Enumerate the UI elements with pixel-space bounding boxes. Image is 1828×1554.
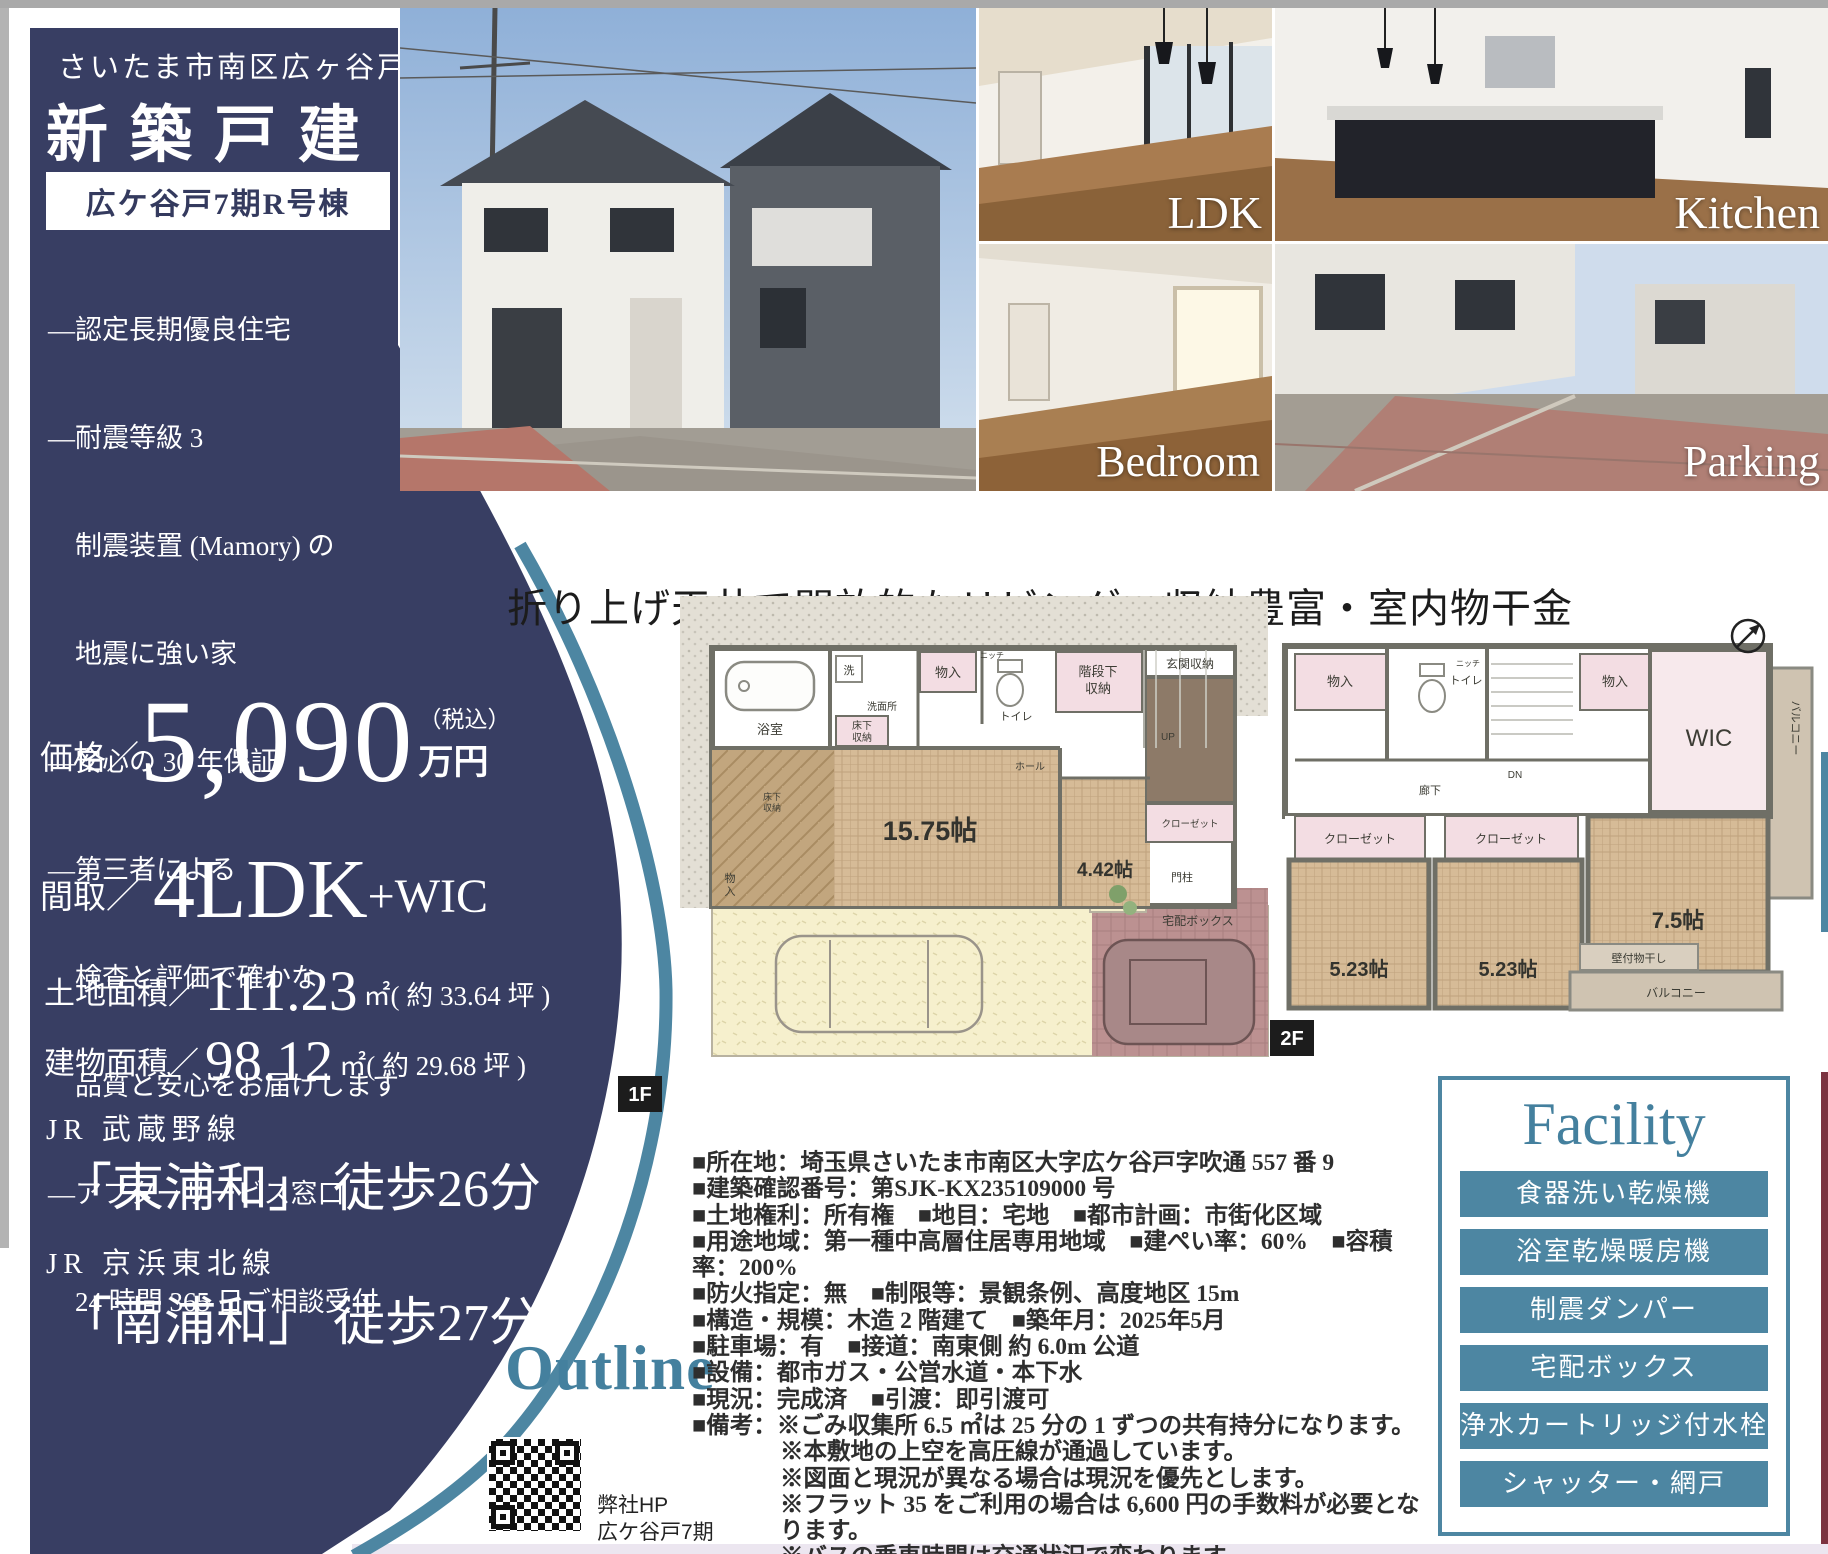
facility-item: 制震ダンパー [1460, 1287, 1768, 1333]
rail-line-1-access: 「東浦和」 徒歩26分 [60, 1146, 541, 1221]
outline-line: ■設備：都市ガス・公営水道・本下水 [692, 1360, 1432, 1386]
facility-panel: Facility 食器洗い乾燥機 浴室乾燥暖房機 制震ダンパー 宅配ボックス 浄… [1438, 1076, 1790, 1536]
qr-caption-line: 弊社HP [597, 1492, 714, 1519]
facility-item: 浴室乾燥暖房機 [1460, 1229, 1768, 1275]
svg-text:2F: 2F [1280, 1028, 1303, 1050]
land-area-unit: ㎡ [364, 974, 391, 1017]
delivery-box-label: 宅配ボックス [1162, 913, 1234, 928]
ldk-photo: LDK [979, 8, 1272, 241]
feature-item: 地震に強い家 [48, 636, 399, 672]
room-label: クローゼット [1324, 832, 1396, 846]
svg-text:1F: 1F [628, 1084, 651, 1106]
rail-line-2-access: 「南浦和」 徒歩27分 [60, 1280, 541, 1355]
outline-line: ■所在地：埼玉県さいたま市南区大字広ケ谷戸字吹通 557 番 9 [692, 1150, 1432, 1176]
bathtub-icon [726, 662, 814, 710]
flyer-title: 新築戸建 [46, 84, 382, 174]
land-area-label: 土地面積／ [44, 968, 199, 1017]
qr-code [487, 1437, 583, 1533]
outline-note: ※本敷地の上空を高圧線が通過しています。 [692, 1439, 1432, 1465]
rail-line-1-name: JR 武蔵野線 [46, 1106, 242, 1148]
facility-item: 宅配ボックス [1460, 1345, 1768, 1391]
room-label: 物入 [935, 665, 961, 680]
kitchen-photo-label: Kitchen [1674, 186, 1820, 239]
room-label: クローゼット [1475, 832, 1547, 846]
outline-title: Outline [505, 1332, 715, 1405]
qr-finder-icon [555, 1441, 579, 1465]
ldk-photo-label: LDK [1167, 186, 1262, 239]
room-label: DN [1508, 770, 1522, 781]
parking-photo-label: Parking [1683, 436, 1820, 487]
price-unit: 万円 [419, 734, 511, 785]
land-area-value: 111.23 [199, 966, 364, 1017]
room-label: トイレ [1450, 675, 1483, 687]
qr-caption: 弊社HP 広ケ谷戸7期 [597, 1492, 714, 1546]
building-area-paren: ( 約 29.68 坪 ) [366, 1044, 526, 1087]
room-label: 床下 [763, 791, 781, 802]
bush-icon [1123, 901, 1137, 915]
price-label: 価格／ [40, 731, 139, 797]
room-size-label: 15.75帖 [883, 816, 978, 846]
room-label: ニッチ [980, 651, 1004, 660]
layout-suffix: +WIC [368, 869, 488, 928]
outline-line: ■構造・規模：木造 2 階建て ■築年月：2025年5月 [692, 1308, 1432, 1334]
outline-line: ■用途地域：第一種中高層住居専用地域 ■建ぺい率：60% ■容積率：200% [692, 1229, 1432, 1282]
room-label: 収納 [852, 731, 872, 744]
station-2: 「南浦和」 [60, 1295, 320, 1352]
outline-line: ■建築確認番号：第SJK-KX235109000 号 [692, 1176, 1432, 1202]
balcony-label: バルコニー [1789, 701, 1802, 756]
room-label: 廊下 [1419, 783, 1441, 797]
room-label: 物入 [1602, 674, 1628, 689]
room-size-label: 5.23帖 [1330, 958, 1389, 981]
room-label: 収納 [1085, 681, 1111, 696]
price-tax-note: （税込） [419, 700, 511, 734]
room-label: 玄関収納 [1166, 656, 1214, 671]
building-area-label: 建物面積／ [44, 1038, 199, 1087]
layout-value: 4LDK [139, 852, 368, 928]
land-area-paren: ( 約 33.64 坪 ) [391, 974, 551, 1017]
feature-item: ―耐震等級 3 [48, 420, 399, 456]
gate-label: 門柱 [1171, 870, 1193, 884]
room-label: 洗 [844, 664, 855, 677]
outline-line: ■駐車場：有 ■接道：南東側 約 6.0m 公道 [692, 1334, 1432, 1360]
outline-note: ※フラット 35 をご利用の場合は 6,600 円の手数料が必要となります。 [692, 1492, 1432, 1545]
floor-plans: 浴室 洗 洗面所 床下 収納 物入 ニッチ トイレ 階段下 収納 UP ホール … [530, 588, 1828, 1118]
floor-tag-2f: 2F [1270, 1020, 1314, 1056]
outline-line: ■土地権利：所有権 ■地目：宅地 ■都市計画：市街化区域 [692, 1203, 1432, 1229]
building-area-row: 建物面積／ 98.12 ㎡ ( 約 29.68 坪 ) [44, 1036, 526, 1087]
room-label: トイレ [1000, 711, 1033, 723]
layout-row: 間取／ 4LDK +WIC [40, 852, 488, 928]
room-label: 物 [725, 871, 736, 885]
price-row: 価格／ 5,090 （税込） 万円 [40, 688, 511, 797]
outline-note: ※図面と現況が異なる場合は現況を優先とします。 [692, 1466, 1432, 1492]
station-1: 「東浦和」 [60, 1161, 320, 1218]
room-label: 収納 [763, 802, 781, 813]
room-label: 洗面所 [867, 701, 897, 713]
floorplan-1f: 浴室 洗 洗面所 床下 収納 物入 ニッチ トイレ 階段下 収納 UP ホール … [618, 596, 1268, 1112]
walk-1: 徒歩26分 [333, 1161, 541, 1218]
qr-caption-line: 広ケ谷戸7期 [597, 1519, 714, 1546]
qr-finder-icon [491, 1441, 515, 1465]
location-heading: さいたま市南区広ヶ谷戸 [58, 44, 409, 86]
room-size-label: 4.42帖 [1077, 858, 1133, 881]
room-label: 物入 [1327, 674, 1353, 689]
room-label: ニッチ [1456, 659, 1480, 668]
layout-label: 間取／ [40, 870, 139, 928]
facility-item: シャッター・網戸 [1460, 1461, 1768, 1507]
flyer-page: さいたま市南区広ヶ谷戸 新築戸建 広ケ谷戸7期R号棟 ―認定長期優良住宅 ―耐震… [0, 0, 1828, 1554]
price-value: 5,090 [139, 688, 415, 797]
kitchen-photo: Kitchen [1275, 8, 1828, 241]
room-size-label: 5.23帖 [1479, 958, 1538, 981]
outline-line: ■備考：※ごみ収集所 6.5 ㎡は 25 分の 1 ずつの共有持分になります。 [692, 1413, 1432, 1439]
room-label: ホール [1015, 761, 1045, 773]
facility-title: Facility [1442, 1090, 1786, 1159]
building-area-value: 98.12 [199, 1036, 339, 1087]
car-icon [1104, 940, 1254, 1044]
feature-item: ―認定長期優良住宅 [48, 312, 399, 348]
room-label: UP [1161, 732, 1175, 743]
room-label: 浴室 [757, 722, 783, 737]
building-badge: 広ケ谷戸7期R号棟 [46, 172, 390, 230]
drying-bar-label: 壁付物干し [1612, 951, 1667, 965]
land-area-row: 土地面積／ 111.23 ㎡ ( 約 33.64 坪 ) [44, 966, 550, 1017]
bedroom-photo: Bedroom [979, 244, 1272, 491]
exterior-illustration [400, 8, 976, 491]
parking-photo: Parking [1275, 244, 1828, 491]
room-size-label: 7.5帖 [1652, 908, 1705, 933]
room-label: 床下 [852, 719, 872, 732]
outline-line: ■防火指定：無 ■制限等：景観条例、高度地区 15m [692, 1281, 1432, 1307]
floor-tag-1f: 1F [618, 1076, 662, 1112]
room-label: WIC [1686, 725, 1733, 752]
facility-item: 食器洗い乾燥機 [1460, 1171, 1768, 1217]
room-label: 階段下 [1078, 664, 1117, 679]
bush-icon [1109, 885, 1127, 903]
rail-line-2-name: JR 京浜東北線 [46, 1240, 277, 1282]
room-label: クローゼット [1161, 818, 1218, 830]
balcony-label: バルコニー [1646, 986, 1706, 1000]
outline-details: ■所在地：埼玉県さいたま市南区大字広ケ谷戸字吹通 557 番 9 ■建築確認番号… [692, 1150, 1432, 1554]
feature-item: 制震装置 (Mamory) の [48, 528, 399, 564]
outline-line: ■現況：完成済 ■引渡：即引渡可 [692, 1387, 1432, 1413]
facility-item: 浄水カートリッジ付水栓 [1460, 1403, 1768, 1449]
room-label: 入 [725, 886, 736, 898]
floorplan-2f: 物入 ニッチ トイレ DN 廊下 物入 WIC バルコニー クローゼット クロー… [1270, 620, 1812, 1056]
building-area-unit: ㎡ [339, 1044, 366, 1087]
bedroom-photo-label: Bedroom [1096, 436, 1260, 487]
qr-finder-icon [491, 1505, 515, 1529]
main-exterior-photo [400, 8, 976, 491]
right-maroon-strip [1821, 1072, 1828, 1544]
outline-note: ※バスの乗車時間は交通状況で変わります。 [692, 1544, 1432, 1554]
